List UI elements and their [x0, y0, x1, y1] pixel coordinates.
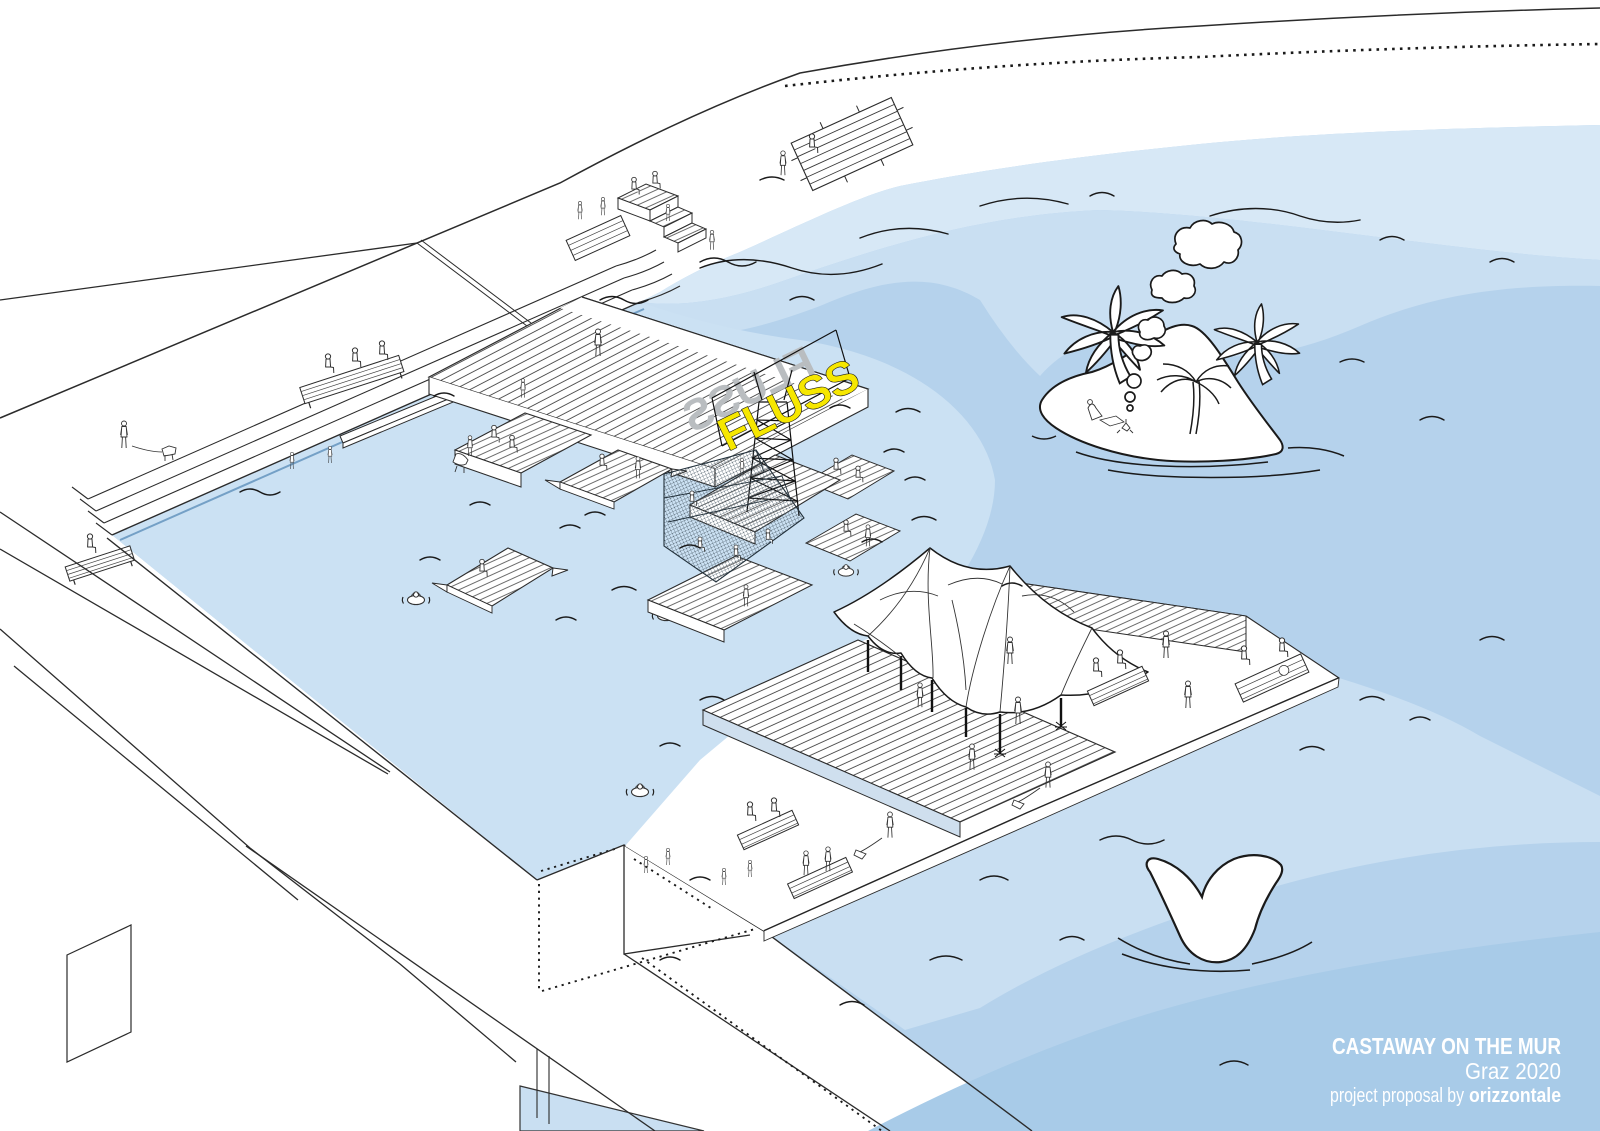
svg-text:orizzontale: orizzontale: [1469, 1085, 1561, 1107]
svg-text:CASTAWAY ON THE MUR: CASTAWAY ON THE MUR: [1332, 1033, 1561, 1059]
svg-text:project proposal by: project proposal by: [1330, 1085, 1464, 1107]
svg-text:Graz 2020: Graz 2020: [1465, 1058, 1561, 1084]
